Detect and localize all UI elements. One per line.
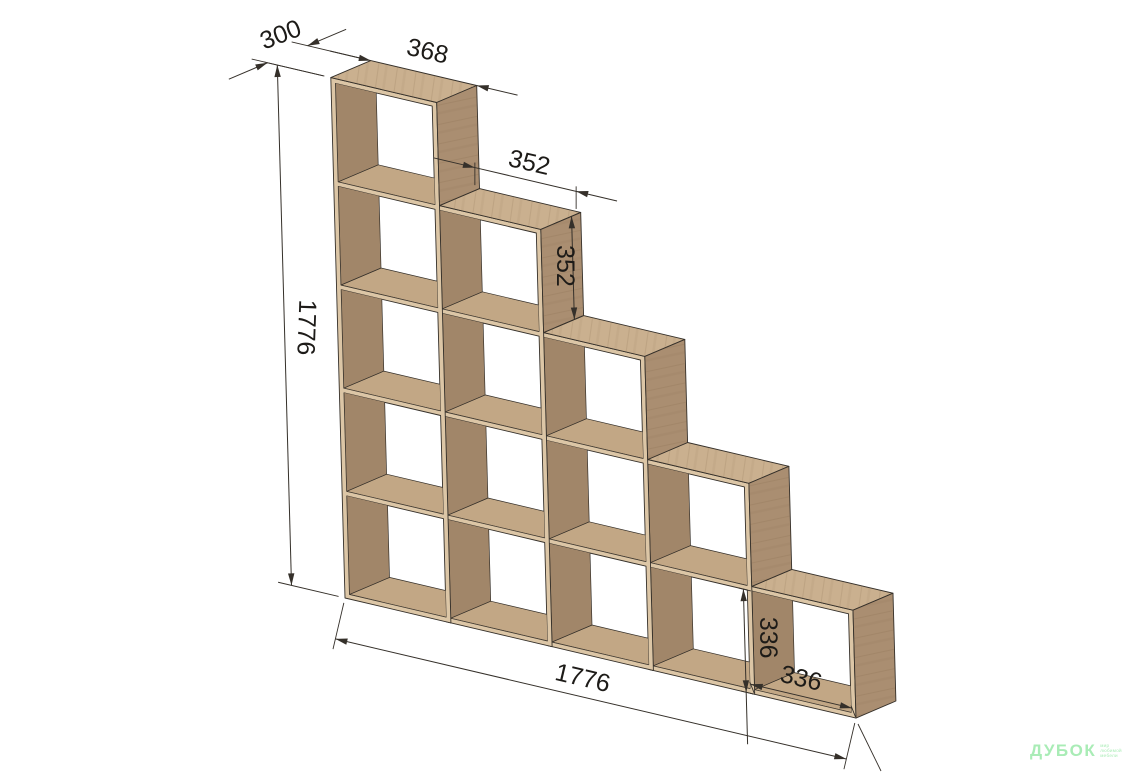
dimension-arrowhead: [288, 573, 294, 585]
shelf-3d-render: 30036835235217761776336336: [0, 0, 1130, 773]
dimension-label-depth: 300: [256, 14, 305, 55]
dimension-label-total-height: 1776: [291, 299, 321, 356]
dimension-arrowhead: [274, 65, 280, 77]
watermark-brand: ДУБОК: [1030, 742, 1096, 759]
dimension-arrowhead: [576, 191, 589, 197]
dimension-arrowhead: [358, 55, 370, 61]
dimension-arrowhead: [477, 85, 489, 91]
dimension-arrowhead: [255, 63, 267, 71]
dimension-label-end-cube-height: 336: [754, 617, 782, 659]
dimension-arrowhead: [335, 639, 347, 645]
watermark: ДУБОК мир любимой мебели: [1030, 742, 1122, 759]
dimension-label-step-height: 352: [551, 245, 579, 287]
furniture-dimension-diagram: 30036835235217761776336336 ДУБОК мир люб…: [0, 0, 1130, 773]
dimension-arrowhead: [834, 753, 847, 759]
dimension-label-step-width: 352: [506, 144, 553, 181]
watermark-tagline: мир любимой мебели: [1100, 743, 1122, 758]
dimension-label-top-cube-width: 368: [404, 33, 451, 70]
dimension-arrowhead: [308, 38, 320, 46]
